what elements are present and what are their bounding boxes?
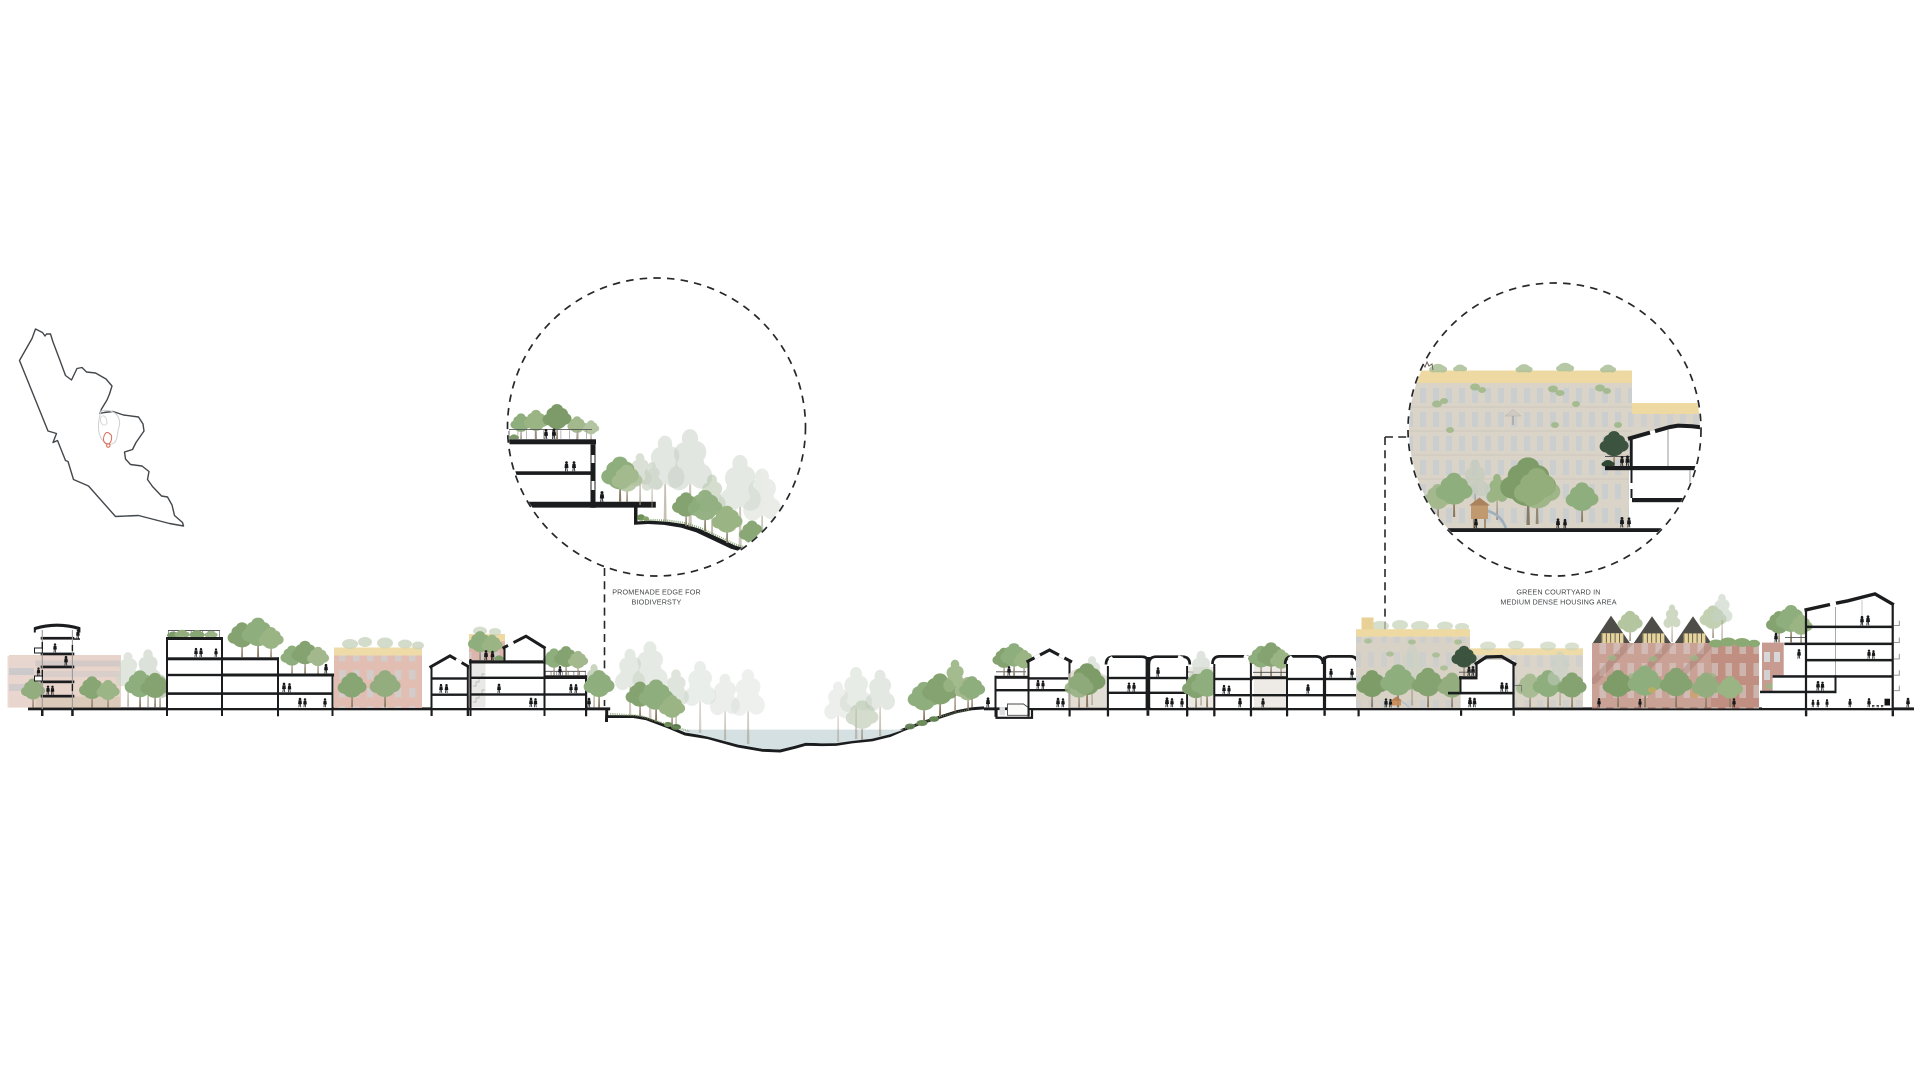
svg-text:MEDIUM DENSE HOUSING AREA: MEDIUM DENSE HOUSING AREA <box>1500 598 1616 607</box>
svg-text:BIODIVERSTY: BIODIVERSTY <box>632 598 682 607</box>
svg-text:PROMENADE EDGE FOR: PROMENADE EDGE FOR <box>612 588 701 597</box>
svg-text:GREEN COURTYARD IN: GREEN COURTYARD IN <box>1516 588 1600 597</box>
